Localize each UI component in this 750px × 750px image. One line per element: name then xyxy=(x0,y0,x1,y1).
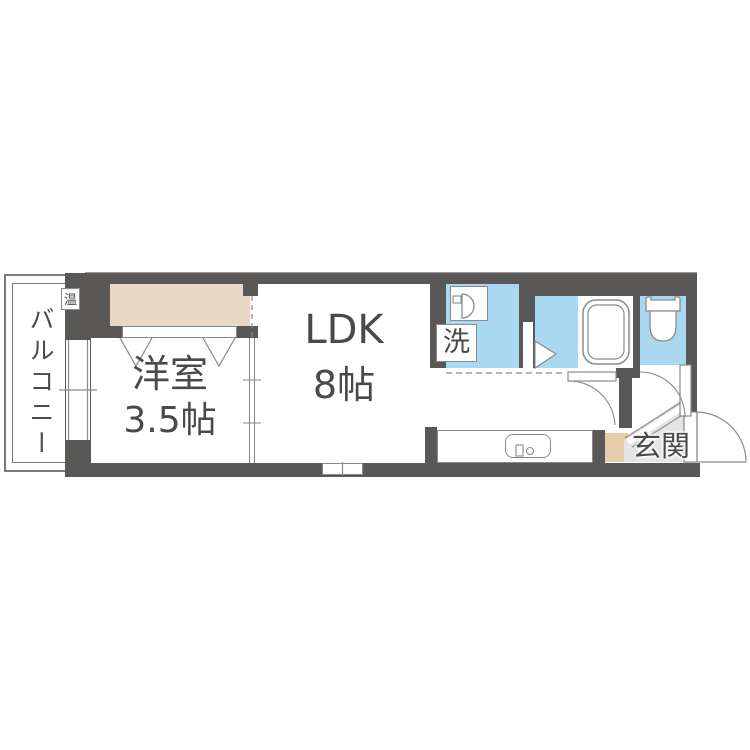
kitchen-sink xyxy=(505,434,551,458)
wall-bathroom-toilet xyxy=(633,296,640,368)
washroom-door-arc xyxy=(569,381,615,425)
washroom-door-opening xyxy=(446,368,566,378)
ldk-label: LDK xyxy=(264,308,424,352)
closet-door-track xyxy=(122,326,237,338)
window-west xyxy=(66,340,90,440)
closet-area xyxy=(110,284,250,326)
wall-hall-horizontal xyxy=(616,368,640,378)
front-door-arc xyxy=(696,412,746,462)
entrance-label: 玄関 xyxy=(624,429,698,463)
bathroom-door-opening xyxy=(523,322,533,368)
wall-closet-door-right-stub xyxy=(237,326,258,338)
laundry-box: 洗 xyxy=(436,324,477,362)
wall-right xyxy=(686,273,697,412)
bathtub-floor xyxy=(578,296,633,368)
western-room-label: 洋室 xyxy=(95,353,245,395)
toilet-area xyxy=(640,296,686,365)
washbasin-box xyxy=(450,286,488,321)
wall-kitchen-stub xyxy=(425,427,437,463)
western-room-size: 3.5帖 xyxy=(90,399,250,443)
washroom-door-leaf xyxy=(568,372,616,381)
laundry-label: 洗 xyxy=(443,327,470,358)
balcony-label: バルコニー xyxy=(24,298,56,468)
wall-partition-top-stub xyxy=(243,284,258,296)
ldk-size: 8帖 xyxy=(264,363,424,407)
wall-closet-left xyxy=(91,284,110,338)
wall-closet-door-left-stub xyxy=(110,326,122,338)
floorplan-canvas: バルコニー 温 洋室 3.5帖 LDK 8帖 洗 玄関 xyxy=(0,0,750,750)
wall-shoebox-stub xyxy=(593,430,605,463)
water-heater-badge: 温 xyxy=(61,288,80,310)
wall-top-bath xyxy=(523,273,697,296)
toilet-door-arc xyxy=(640,372,685,417)
window-south xyxy=(322,463,363,475)
water-heater-label: 温 xyxy=(64,293,77,308)
wall-hall-vertical xyxy=(619,378,632,428)
wall-bottom xyxy=(65,463,700,477)
